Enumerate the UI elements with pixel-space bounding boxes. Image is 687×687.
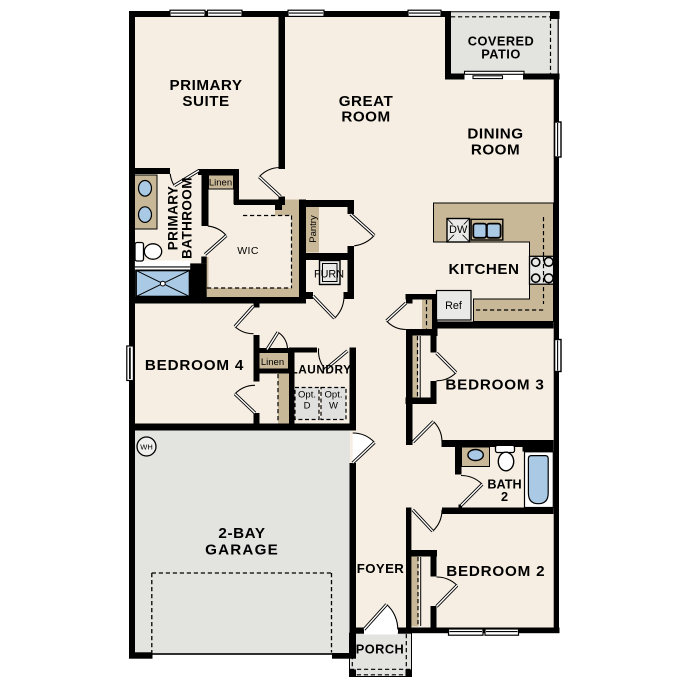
svg-text:ROOM: ROOM: [471, 142, 520, 159]
svg-text:Pantry: Pantry: [308, 215, 319, 243]
svg-text:LAUNDRY: LAUNDRY: [290, 362, 351, 376]
svg-text:BEDROOM 4: BEDROOM 4: [145, 357, 244, 374]
svg-text:ROOM: ROOM: [341, 109, 390, 126]
svg-text:2-BAY: 2-BAY: [218, 525, 265, 542]
svg-text:PRIMARY: PRIMARY: [170, 77, 243, 94]
svg-text:BEDROOM 2: BEDROOM 2: [446, 563, 545, 580]
svg-text:D: D: [304, 401, 311, 412]
svg-text:WH: WH: [140, 443, 153, 452]
svg-text:Opt.: Opt.: [325, 390, 343, 401]
svg-text:Linen: Linen: [261, 357, 284, 368]
svg-text:WIC: WIC: [237, 245, 259, 257]
svg-text:Linen: Linen: [209, 177, 232, 188]
svg-text:GREAT: GREAT: [339, 93, 394, 110]
svg-text:2: 2: [501, 490, 508, 504]
svg-text:DW: DW: [449, 224, 468, 236]
svg-text:PRIMARY: PRIMARY: [166, 186, 181, 251]
svg-text:Ref: Ref: [445, 300, 463, 312]
svg-text:DINING: DINING: [467, 126, 523, 143]
svg-text:BEDROOM 3: BEDROOM 3: [445, 377, 544, 394]
svg-text:KITCHEN: KITCHEN: [449, 261, 520, 278]
svg-text:GARAGE: GARAGE: [205, 542, 279, 559]
svg-text:FURN: FURN: [314, 269, 344, 281]
svg-text:Opt.: Opt.: [298, 390, 316, 401]
svg-text:SUITE: SUITE: [182, 93, 229, 110]
svg-text:FOYER: FOYER: [357, 561, 405, 576]
svg-text:BATHROOM: BATHROOM: [180, 177, 195, 259]
svg-text:W: W: [329, 401, 338, 412]
svg-text:PATIO: PATIO: [481, 47, 520, 62]
svg-text:PORCH: PORCH: [356, 642, 404, 657]
